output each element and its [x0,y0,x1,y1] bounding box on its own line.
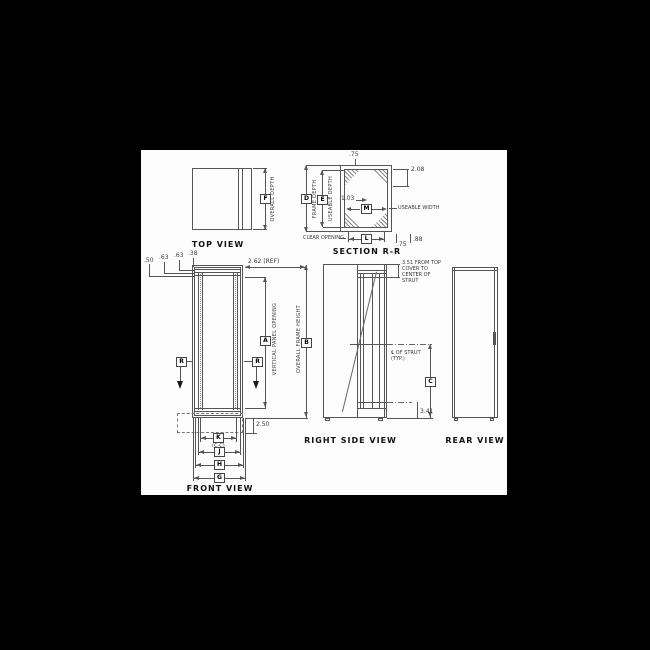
foot [454,418,458,421]
dim-value-bottom: 3.41 [420,409,433,415]
arrow-right-icon [238,463,243,467]
front-view-title: FRONT VIEW [175,484,265,493]
section-arrow-icon [253,381,259,389]
extension-line [245,277,266,278]
arrow-left-icon [199,450,204,454]
dim-letter-b: B [301,338,312,348]
extension-line [149,276,194,277]
extension-line [179,270,194,271]
extension-line [387,264,400,265]
extension-line [410,234,411,243]
dim-value-ref: 2.62 (REF) [248,259,279,265]
bottom-rail-line [357,408,387,409]
dim-line [417,402,418,418]
mounting-rail-line [202,272,203,410]
rear-panel-line [452,270,498,271]
extension-line [236,418,237,442]
dim-letter-h: H [214,460,225,470]
extension-line [307,231,340,232]
arrow-up-icon [428,344,432,349]
dim-line [398,264,399,277]
strut-line [357,402,387,403]
dim-value-base: 2.50 [256,422,269,428]
arrow-down-icon [263,402,267,407]
arrow-right-icon [362,198,367,202]
leader-line [355,159,356,165]
side-view-outline [323,264,387,418]
arrow-left-icon [196,463,201,467]
top-member-line [194,269,241,270]
extension-line [384,232,385,242]
section-line [180,366,181,382]
section-arrow-icon [177,381,183,389]
top-member-line [194,275,241,276]
frame-member-line [384,264,385,418]
arrow-right-icon [379,237,384,241]
dim-line [407,169,408,186]
arrow-right-icon [231,436,236,440]
extension-line [393,186,409,187]
dim-value-bottom-outer: .88 [413,237,423,243]
top-view-outline [192,168,252,230]
frame-member-line [363,273,364,408]
leader-line [339,238,346,239]
section-rr-title: SECTION R-R [332,247,402,256]
rail-hole-pattern [235,274,237,408]
leader-line [179,260,180,270]
section-line [244,361,252,362]
section-line [256,366,257,382]
dim-value-3: .63 [174,253,184,259]
strut-line [350,344,387,345]
rear-panel-line [454,267,455,418]
dim-value-top: .75 [349,152,359,158]
leader-line [149,264,150,276]
base-outline-dashed [177,413,243,433]
dim-value-2: .63 [159,255,169,261]
dim-ref-line [245,267,306,268]
useable-width-label: USEABLE WIDTH [398,206,439,211]
foot [325,418,330,421]
extension-line [245,418,246,481]
extension-line [245,433,257,434]
extension-line [323,227,344,228]
dim-letter-j: J [214,447,225,457]
leader-line [389,208,397,209]
door-handle [493,332,496,345]
arrow-right-icon [240,476,245,480]
frame-member-line [357,264,358,418]
dim-m-line [350,209,360,210]
arrow-left-icon [349,237,354,241]
extension-line [164,273,194,274]
drawing-sheet: F OVERALL DEPTH TOP VIEW M .75 2.08 1.03… [141,150,507,495]
frame-member-line [379,273,380,408]
top-rail-line [357,270,387,271]
dim-letter-a: A [260,336,271,346]
arrow-right-icon [382,207,387,211]
extension-line [243,418,244,468]
dim-letter-g: G [214,473,225,483]
arrow-down-icon [304,412,308,417]
clear-opening-label: CLEAR OPENING [303,236,344,241]
rear-view-title: REAR VIEW [442,436,508,445]
arrow-down-icon [263,225,267,230]
section-marker-r-left: R [176,357,187,367]
top-strut-note: 3.51 FROM TOP COVER TO CENTER OF STRUT [402,260,441,284]
bottom-member-line [194,411,241,412]
extension-line [193,418,194,481]
arrow-left-icon [194,476,199,480]
top-member-line [194,272,241,273]
arrow-right-icon [235,450,240,454]
arrow-left-icon [201,436,206,440]
mounting-rail-line [233,272,234,410]
extension-line [245,418,308,419]
rear-view-outline [452,267,498,418]
dim-value-4: .38 [188,251,198,257]
extension-line [307,165,340,166]
mounting-rail-line [198,272,199,410]
dim-value-corner: 2.08 [411,167,424,173]
right-side-view-title: RIGHT SIDE VIEW [293,436,408,445]
useable-depth-label: USEABLE DEPTH [328,171,334,226]
vertical-panel-opening-label: VERTICAL PANEL OPENING [272,278,278,400]
drawing-canvas: F OVERALL DEPTH TOP VIEW M .75 2.08 1.03… [0,0,650,650]
arrow-left-icon [245,265,250,269]
dim-letter-k: K [213,433,224,443]
strut-note: ℄ OF STRUT (TYP.) [391,350,421,362]
dim-letter-l: L [361,234,372,244]
rail-hole-pattern [200,274,202,408]
dim-letter-e: E [317,195,328,205]
dim-line [253,418,254,433]
dim-letter-m: M [361,204,372,214]
extension-line [387,418,433,419]
arrow-up-icon [304,265,308,270]
frame-member-line [372,273,373,408]
extension-line [240,418,241,455]
extension-line [245,408,266,409]
foot [490,418,494,421]
section-marker-r-right: R [252,357,263,367]
extension-line [387,277,400,278]
dim-letter-c: C [425,377,436,387]
dim-value-gusset: 1.03 [341,196,354,202]
arrow-up-icon [263,168,267,173]
foot [378,418,383,421]
leader-line [193,258,194,267]
top-view-panel-line [242,168,243,230]
dim-letter-d: D [301,194,312,204]
mounting-rail-line [237,272,238,410]
strut-centerline [387,344,432,345]
bottom-member-line [194,408,241,409]
extension-line [195,418,196,468]
dim-m-line [372,209,382,210]
leader-line [164,262,165,273]
top-view-panel-line [238,168,239,230]
arrow-left-icon [346,207,351,211]
strut-centerline [387,402,412,403]
dim-letter-f: F [260,194,271,204]
top-view-title: TOP VIEW [183,240,253,249]
